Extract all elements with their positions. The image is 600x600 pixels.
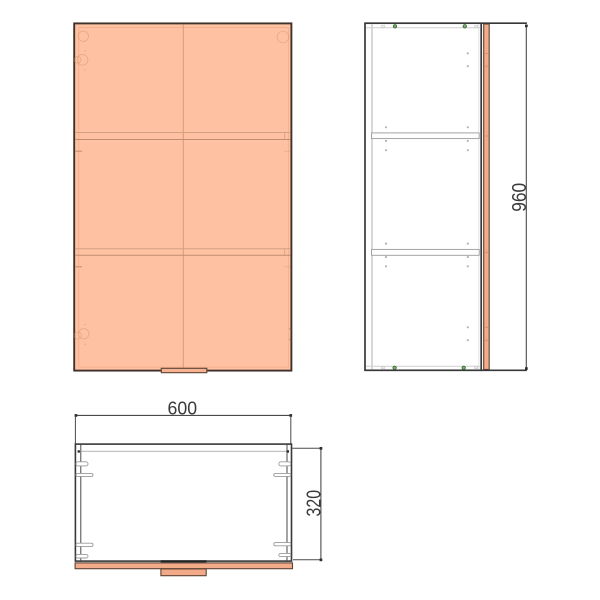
- svg-text:600: 600: [168, 397, 198, 418]
- svg-text:320: 320: [303, 490, 325, 517]
- svg-text:960: 960: [509, 183, 531, 212]
